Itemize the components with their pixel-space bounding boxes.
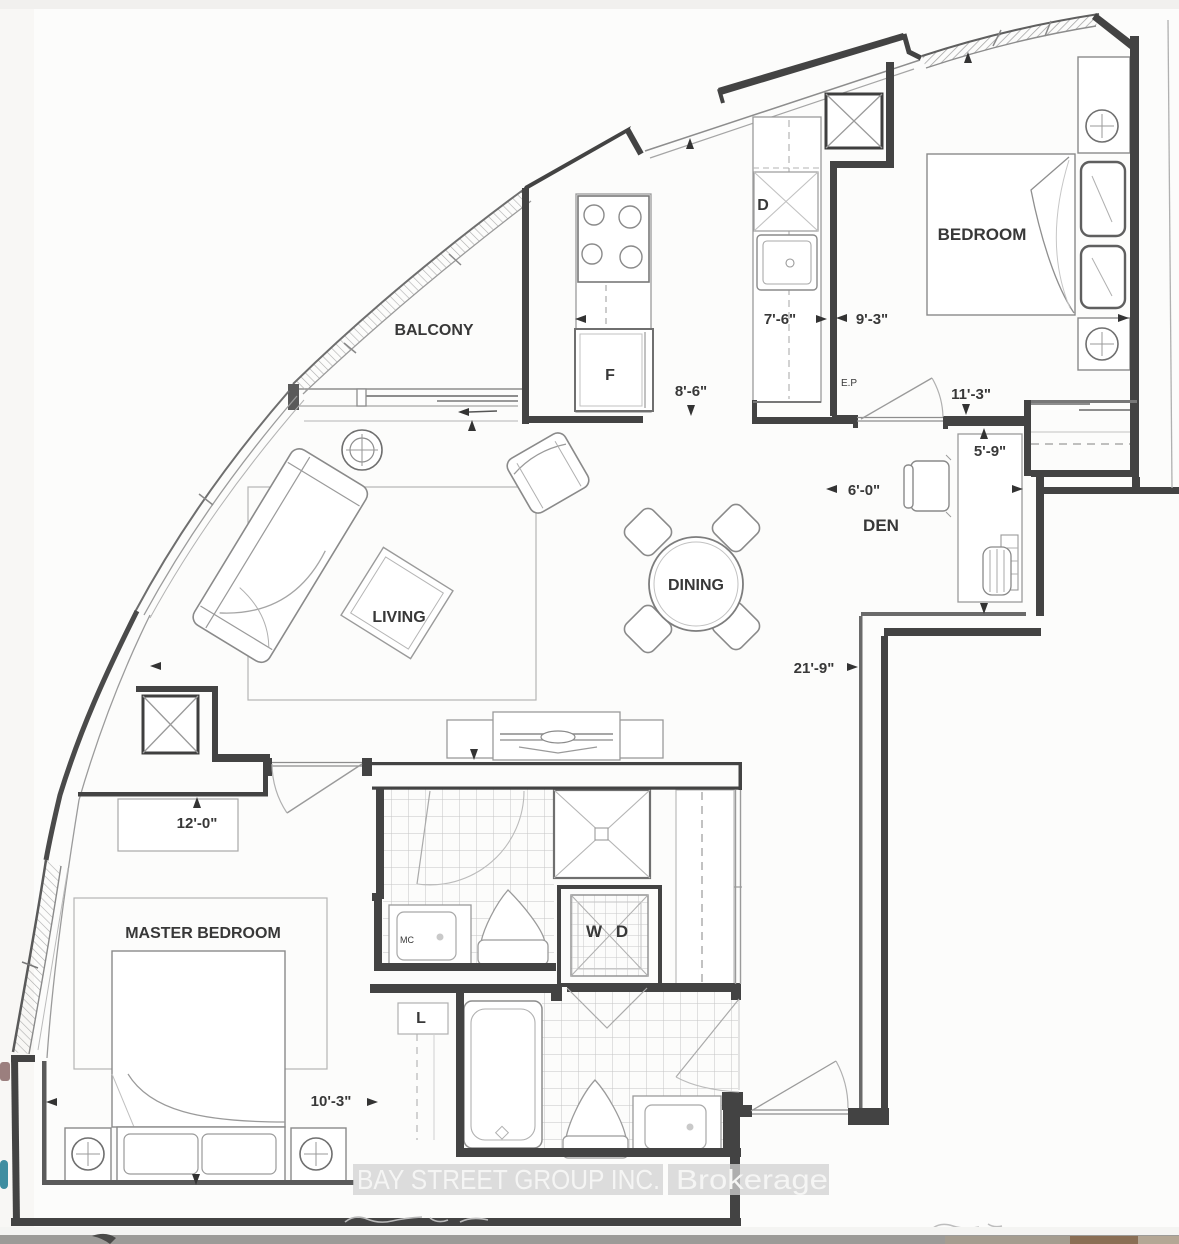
svg-text:10'-3": 10'-3" xyxy=(311,1093,352,1110)
svg-text:D: D xyxy=(757,197,769,214)
svg-text:Brokerage: Brokerage xyxy=(676,1164,828,1195)
svg-text:MC: MC xyxy=(400,935,414,945)
svg-text:MASTER BEDROOM: MASTER BEDROOM xyxy=(125,925,281,942)
svg-text:6'-0": 6'-0" xyxy=(848,482,880,499)
svg-text:LIVING: LIVING xyxy=(372,609,425,626)
svg-text:BALCONY: BALCONY xyxy=(394,322,473,339)
svg-text:DEN: DEN xyxy=(863,516,899,535)
svg-text:21'-9": 21'-9" xyxy=(794,660,835,677)
svg-text:BAY STREET GROUP INC.: BAY STREET GROUP INC. xyxy=(357,1164,660,1195)
svg-text:7'-6": 7'-6" xyxy=(764,311,796,328)
svg-text:BEDROOM: BEDROOM xyxy=(938,225,1027,244)
svg-text:8'-6": 8'-6" xyxy=(675,383,707,400)
svg-text:9'-3": 9'-3" xyxy=(856,311,888,328)
svg-text:DINING: DINING xyxy=(668,577,724,594)
svg-text:F: F xyxy=(605,367,615,384)
svg-text:L: L xyxy=(416,1010,426,1027)
svg-text:D: D xyxy=(616,922,628,941)
svg-text:11'-3": 11'-3" xyxy=(951,386,991,403)
svg-text:12'-0": 12'-0" xyxy=(177,815,218,832)
svg-text:5'-9": 5'-9" xyxy=(974,443,1006,460)
svg-text:W: W xyxy=(586,922,603,941)
svg-text:E.P: E.P xyxy=(841,378,857,389)
